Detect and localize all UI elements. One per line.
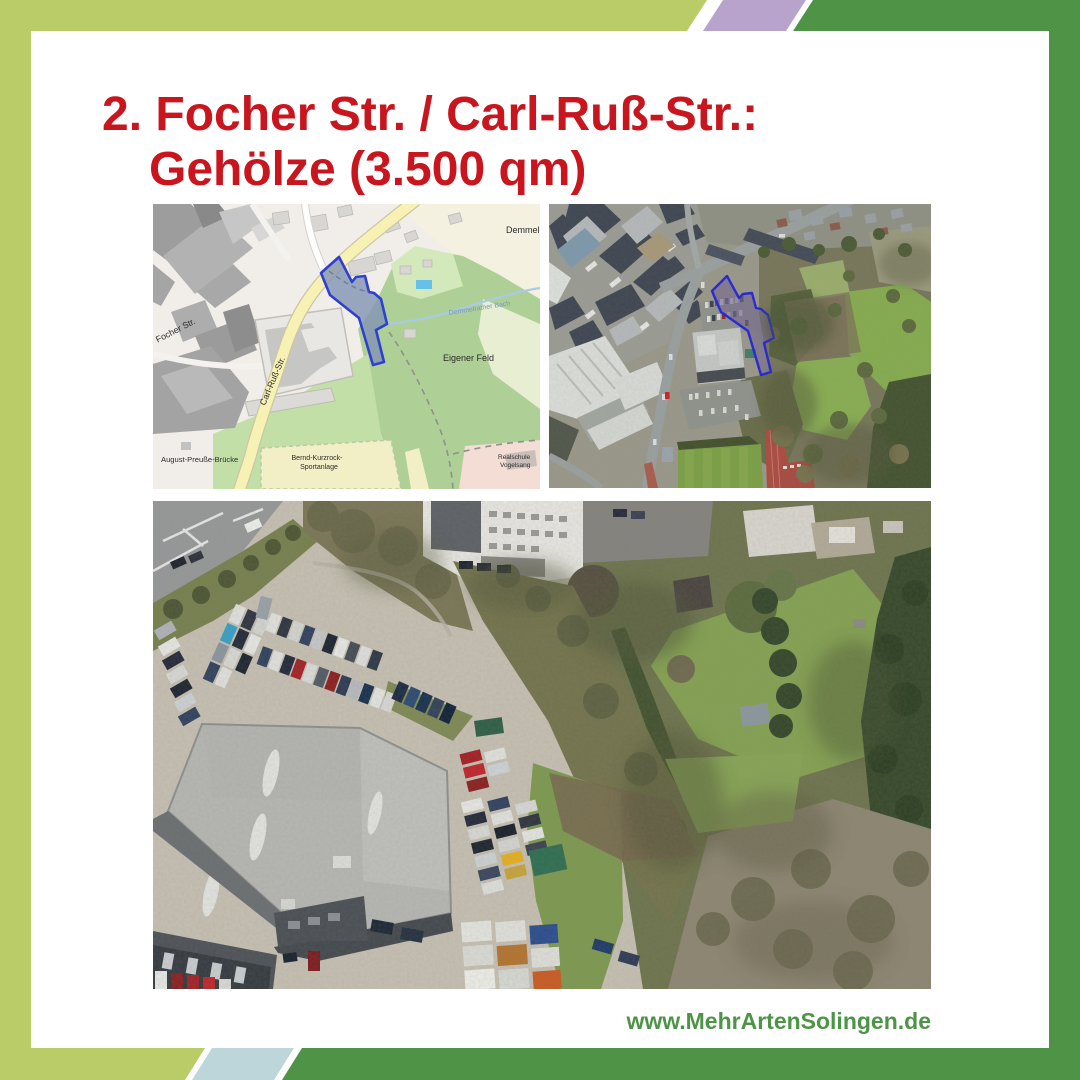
svg-text:Realschule: Realschule [498, 454, 531, 461]
svg-text:Bernd-Kurzrock-: Bernd-Kurzrock- [292, 455, 344, 462]
svg-text:Demmel: Demmel [506, 225, 540, 235]
svg-text:Eigener Feld: Eigener Feld [443, 353, 494, 363]
svg-text:August-Preuße-Brücke: August-Preuße-Brücke [161, 455, 238, 464]
svg-text:Vogelsang: Vogelsang [500, 462, 531, 469]
svg-text:Sportanlage: Sportanlage [300, 464, 338, 471]
